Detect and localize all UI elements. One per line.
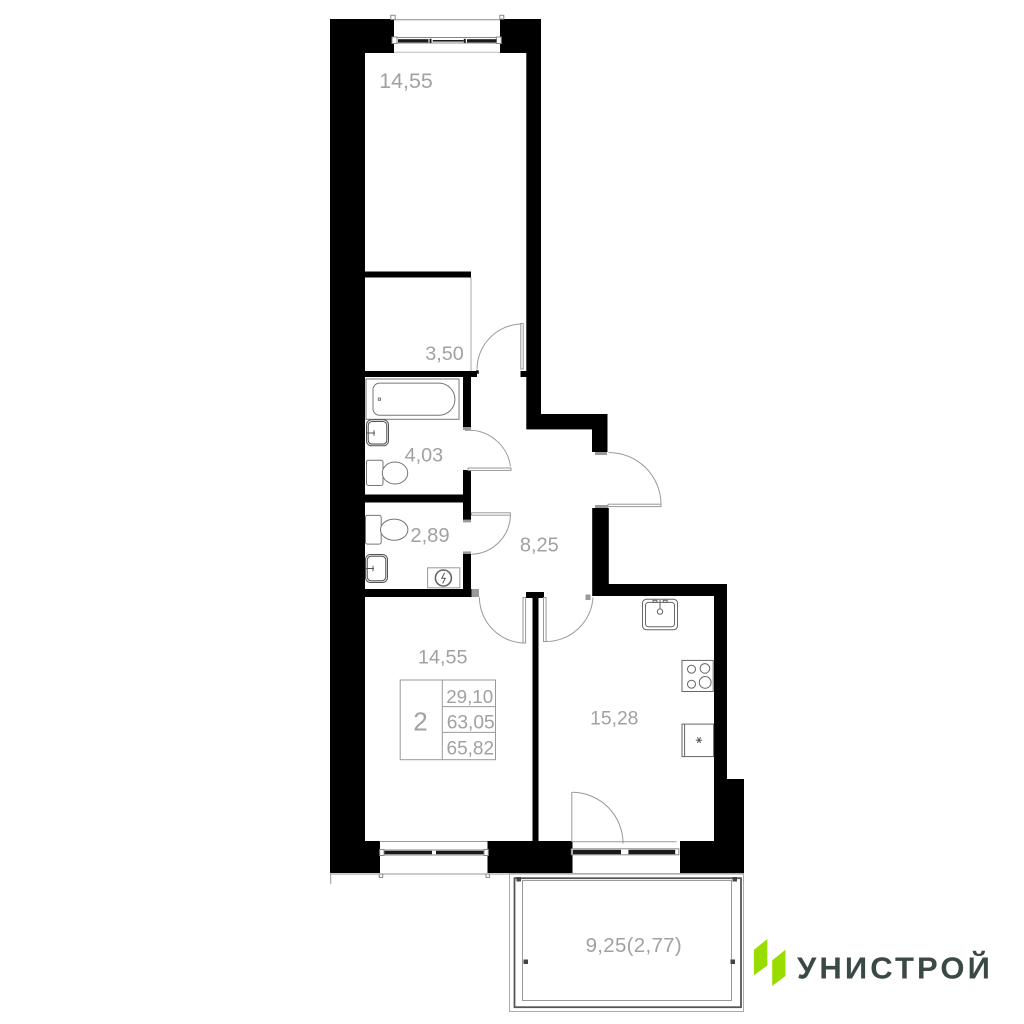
svg-text:15,28: 15,28 bbox=[590, 708, 638, 729]
svg-text:63,05: 63,05 bbox=[447, 712, 495, 733]
svg-text:29,10: 29,10 bbox=[446, 686, 493, 707]
svg-text:65,82: 65,82 bbox=[447, 739, 495, 760]
svg-text:УНИСТРОЙ: УНИСТРОЙ bbox=[797, 950, 993, 986]
svg-text:3,50: 3,50 bbox=[425, 343, 464, 365]
svg-text:4,03: 4,03 bbox=[405, 445, 444, 467]
svg-text:2: 2 bbox=[413, 707, 427, 737]
svg-text:14,55: 14,55 bbox=[418, 647, 468, 669]
svg-text:2,89: 2,89 bbox=[410, 525, 449, 547]
svg-text:9,25(2,77): 9,25(2,77) bbox=[586, 934, 682, 957]
svg-text:14,55: 14,55 bbox=[379, 69, 433, 93]
svg-text:8,25: 8,25 bbox=[520, 535, 559, 557]
